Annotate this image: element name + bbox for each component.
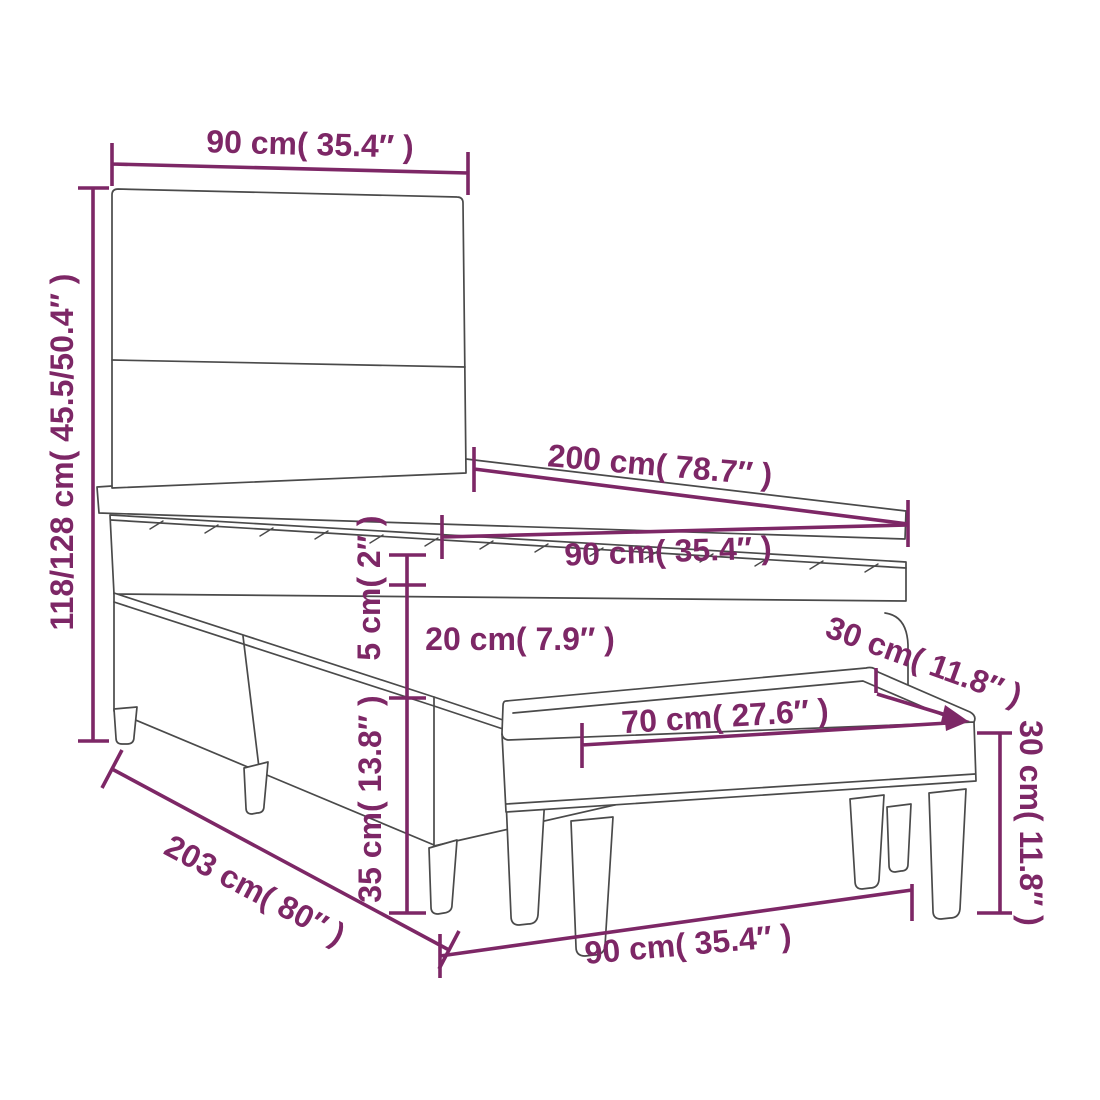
bench-leg <box>506 795 545 925</box>
dim-mattress-thickness: 20 cm( 7.9″ ) <box>389 585 615 698</box>
dim-bench-height-label: 30 cm( 11.8″ ) <box>1013 720 1049 926</box>
bed-leg <box>429 840 457 914</box>
bed-leg <box>244 762 268 814</box>
dim-floor-width-label: 90 cm( 35.4″ ) <box>583 917 793 971</box>
dim-headboard-height-label: 118/128 cm( 45.5/50.4″ ) <box>44 274 80 631</box>
bench-leg <box>929 789 966 919</box>
bench-leg <box>850 795 884 889</box>
dim-headboard-width-label: 90 cm( 35.4″ ) <box>206 123 414 164</box>
box-spring-side-edge <box>434 697 503 729</box>
bed-leg <box>887 804 911 872</box>
dim-bench-height: 30 cm( 11.8″ ) <box>977 720 1049 926</box>
dim-mattress-width-label: 90 cm( 35.4″ ) <box>564 529 773 572</box>
bed <box>97 189 911 914</box>
dim-topper-thickness-label: 5 cm( 2″ ) <box>351 515 387 660</box>
headboard <box>112 189 466 488</box>
dim-mattress-thickness-label: 20 cm( 7.9″ ) <box>425 621 615 657</box>
dimension-diagram: 90 cm( 35.4″ ) 118/128 cm( 45.5/50.4″ ) … <box>0 0 1100 1100</box>
bed-leg <box>114 707 137 744</box>
diagram-canvas: 90 cm( 35.4″ ) 118/128 cm( 45.5/50.4″ ) … <box>0 0 1100 1100</box>
dim-headboard-width: 90 cm( 35.4″ ) <box>112 123 468 195</box>
dim-base-height-label: 35 cm( 13.8″ ) <box>352 695 388 902</box>
dim-headboard-height: 118/128 cm( 45.5/50.4″ ) <box>44 188 109 741</box>
